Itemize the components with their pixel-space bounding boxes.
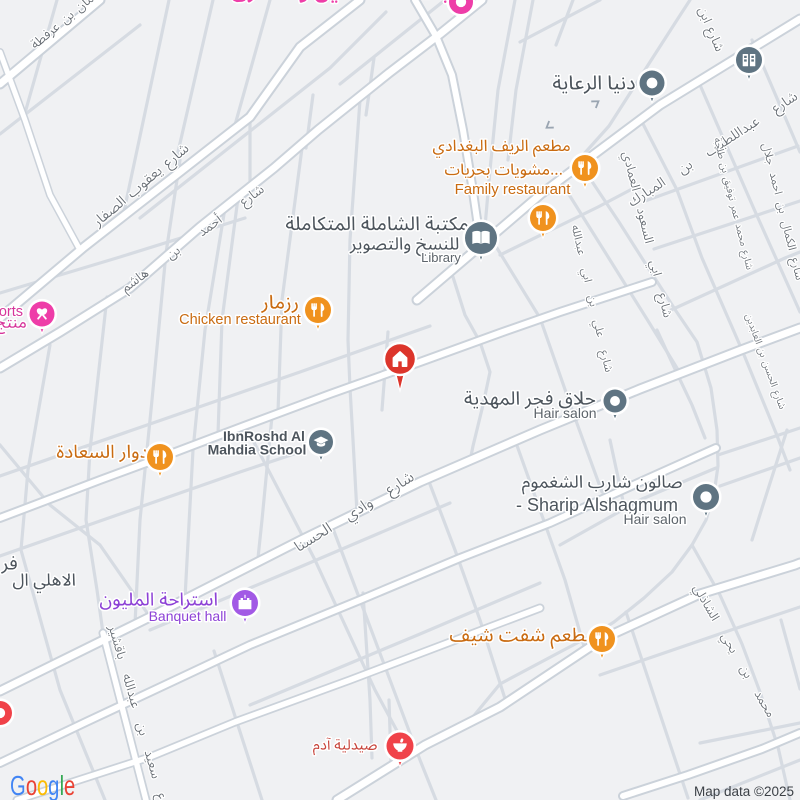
svg-text:Mahdia School: Mahdia School bbox=[208, 442, 307, 458]
svg-text:Hair salon: Hair salon bbox=[533, 405, 596, 421]
svg-text:o: o bbox=[37, 771, 48, 800]
svg-text:Banquet hall: Banquet hall bbox=[149, 608, 227, 624]
svg-text:Hair salon: Hair salon bbox=[623, 511, 686, 527]
svg-text:Chicken restaurant: Chicken restaurant bbox=[179, 312, 301, 328]
svg-text:orts: orts bbox=[0, 304, 23, 320]
svg-text:o: o bbox=[26, 771, 37, 800]
svg-text:g: g bbox=[48, 771, 59, 800]
svg-text:Library: Library bbox=[421, 250, 461, 265]
svg-text:Family restaurant: Family restaurant bbox=[455, 181, 572, 198]
svg-text:G: G bbox=[10, 771, 26, 800]
svg-text:e: e bbox=[64, 771, 75, 800]
svg-text:Map data ©2025: Map data ©2025 bbox=[694, 784, 794, 799]
